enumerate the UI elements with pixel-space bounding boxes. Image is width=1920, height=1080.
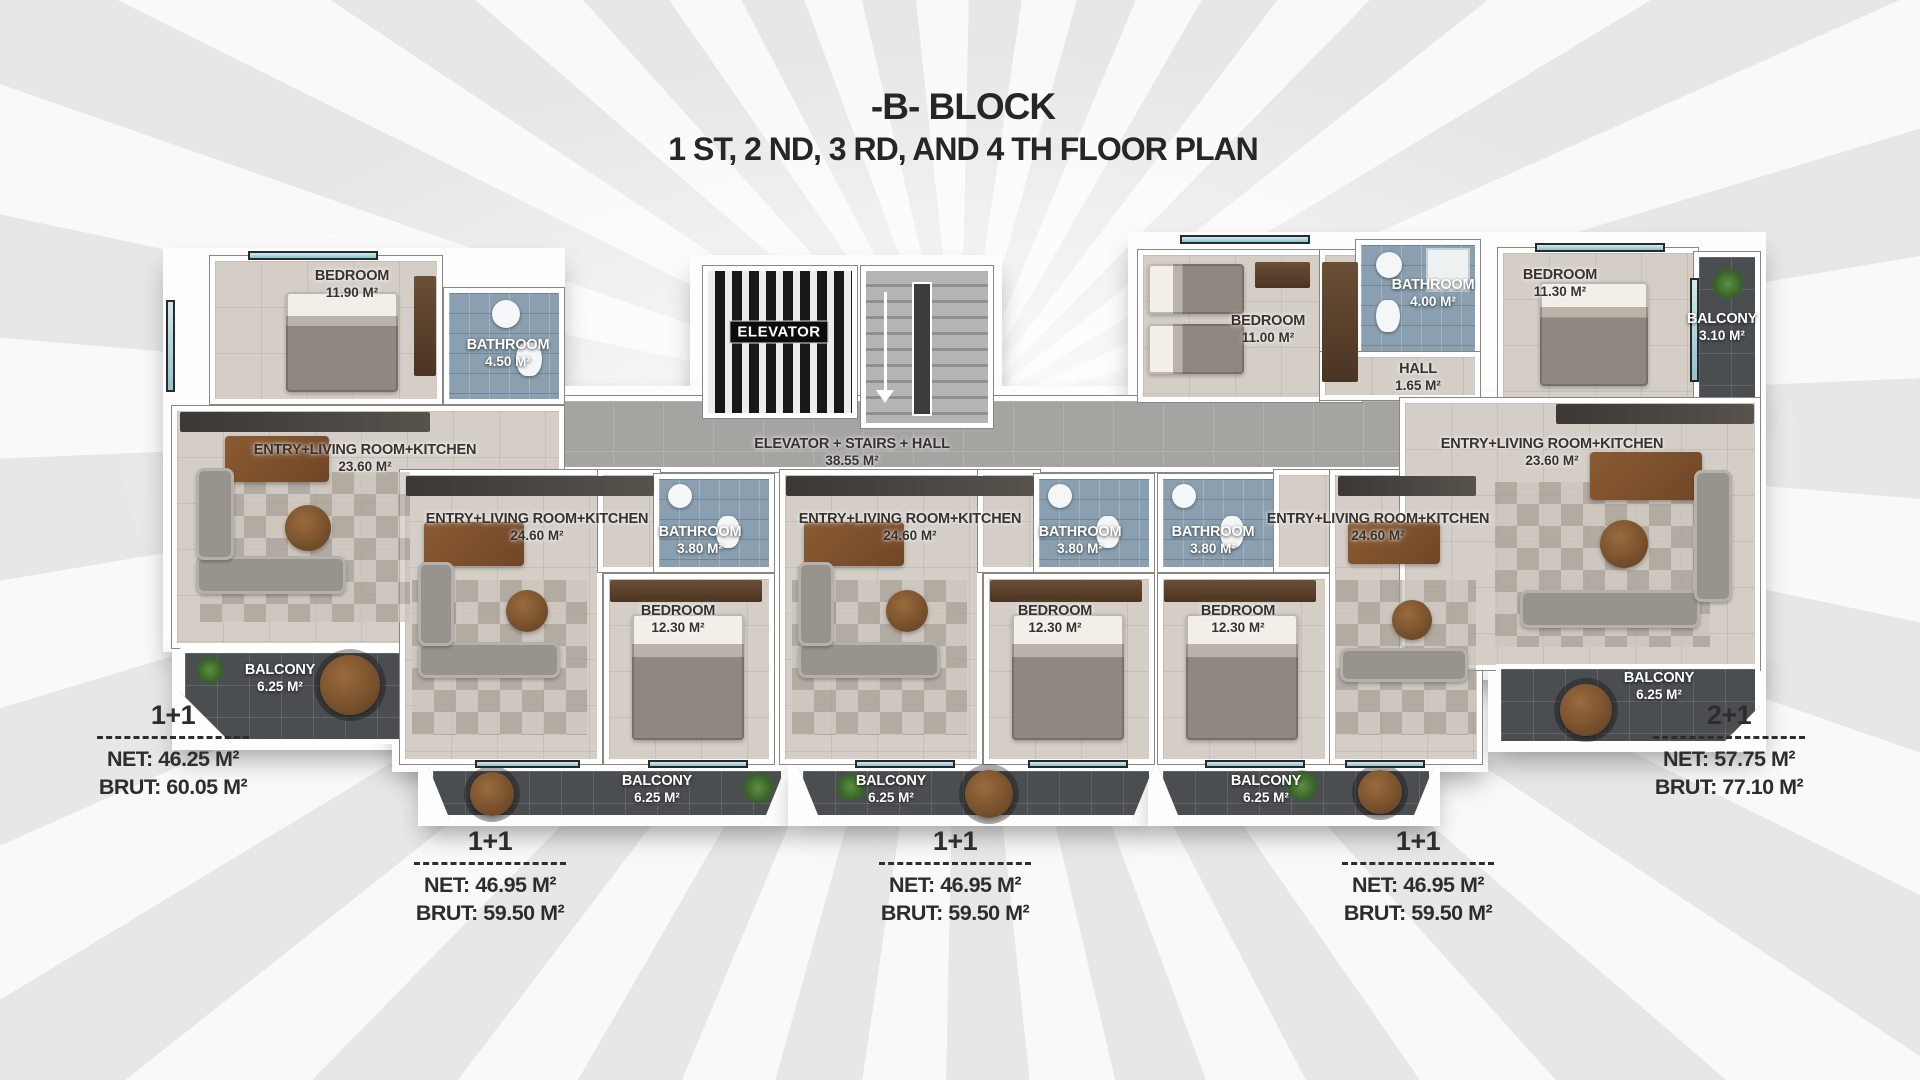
balcony-table-graphic [1358,770,1402,814]
room-area: 11.30 M² [1523,284,1597,299]
room-name: BATHROOM [659,524,742,541]
window-graphic [648,760,748,768]
room-label-right-bedroom1: BEDROOM 11.00 M² [1231,313,1305,345]
room-label-unit-b-balcony: BALCONY 6.25 M² [856,773,926,805]
room-area: 38.55 M² [754,453,950,468]
coffee-table-graphic [886,590,928,632]
brut-area: BRUT: 60.05 M² [73,774,273,802]
coffee-table-graphic [1600,520,1648,568]
sofa-graphic [1520,590,1700,628]
coffee-table-graphic [285,505,331,551]
unit-summary-left: 1+1 NET: 46.25 M² BRUT: 60.05 M² [73,700,273,802]
kitchen-counter-graphic [406,476,654,496]
room-area: 24.60 M² [1267,528,1489,543]
balcony-table-graphic [1560,684,1612,736]
room-area: 23.60 M² [1441,453,1663,468]
room-name: BALCONY [1687,311,1757,328]
window-graphic [166,300,175,392]
unit-type: 1+1 [73,700,273,731]
unit-summary-c: 1+1 NET: 46.95 M² BRUT: 59.50 M² [1318,826,1518,928]
bed-graphic [286,292,398,392]
room-area: 12.30 M² [1201,620,1275,635]
window-graphic [1535,243,1665,252]
plant-graphic [742,772,774,804]
room-name: BATHROOM [467,337,550,354]
plant-graphic [196,656,224,684]
sink-graphic [1048,484,1072,508]
room-area: 6.25 M² [245,679,315,694]
room-name: BEDROOM [1018,603,1092,620]
room-area: 4.50 M² [467,354,550,369]
room-name: BALCONY [622,773,692,790]
kitchen-counter-graphic [1338,476,1476,496]
balcony-table-graphic [965,770,1013,818]
plan-title: -B- BLOCK 1 ST, 2 ND, 3 RD, AND 4 TH FLO… [463,86,1463,168]
dashed-divider [879,862,1031,865]
room-area: 23.60 M² [254,459,476,474]
desk-graphic [1255,262,1310,288]
room-label-left-bedroom: BEDROOM 11.90 M² [315,268,389,300]
balcony-table-graphic [320,655,380,715]
room-label-unit-c-bathroom: BATHROOM 3.80 M² [1172,524,1255,556]
balcony-table-graphic [470,772,514,816]
sofa-graphic [1694,470,1732,602]
wardrobe-graphic [1322,262,1358,382]
unit-summary-right: 2+1 NET: 57.75 M² BRUT: 77.10 M² [1629,700,1829,802]
brut-area: BRUT: 59.50 M² [855,900,1055,928]
dashed-divider [1653,736,1805,739]
room-area: 4.00 M² [1392,294,1475,309]
dashed-divider [414,862,566,865]
wardrobe-graphic [610,580,762,602]
room-name: BALCONY [856,773,926,790]
brut-area: BRUT: 77.10 M² [1629,774,1829,802]
sofa-graphic [798,562,834,646]
net-area: NET: 46.95 M² [855,872,1055,900]
room-label-left-balcony: BALCONY 6.25 M² [245,662,315,694]
window-graphic [248,251,378,260]
sofa-graphic [418,642,560,678]
room-area: 6.25 M² [1231,790,1301,805]
single-bed-graphic [1148,324,1244,374]
net-area: NET: 46.95 M² [390,872,590,900]
room-name: BATHROOM [1039,524,1122,541]
sofa-graphic [196,468,234,560]
sink-graphic [1172,484,1196,508]
unit-type: 1+1 [390,826,590,857]
sink-graphic [1376,252,1402,278]
room-name: ENTRY+LIVING ROOM+KITCHEN [426,511,648,528]
room-label-unit-c-bedroom: BEDROOM 12.30 M² [1201,603,1275,635]
room-label-right-living: ENTRY+LIVING ROOM+KITCHEN 23.60 M² [1441,436,1663,468]
room-name: BALCONY [1231,773,1301,790]
room-name: BEDROOM [1523,267,1597,284]
dashed-divider [97,736,249,739]
room-area: 3.10 M² [1687,328,1757,343]
wardrobe-graphic [1164,580,1316,602]
brut-area: BRUT: 59.50 M² [1318,900,1518,928]
room-name: ELEVATOR + STAIRS + HALL [754,436,950,453]
unit-type: 1+1 [855,826,1055,857]
sink-graphic [492,300,520,328]
single-bed-graphic [1148,264,1244,314]
room-area: 11.00 M² [1231,330,1305,345]
room-label-unit-b-bedroom: BEDROOM 12.30 M² [1018,603,1092,635]
net-area: NET: 57.75 M² [1629,746,1829,774]
room-area: 3.80 M² [1172,541,1255,556]
kitchen-counter-graphic [1556,404,1754,424]
room-label-unit-a-balcony: BALCONY 6.25 M² [622,773,692,805]
sofa-graphic [196,556,346,594]
room-area: 6.25 M² [856,790,926,805]
window-graphic [855,760,955,768]
room-label-right-balcony: BALCONY 6.25 M² [1624,670,1694,702]
room-area: 6.25 M² [622,790,692,805]
sofa-graphic [418,562,454,646]
room-area: 24.60 M² [799,528,1021,543]
room-label-unit-b-living: ENTRY+LIVING ROOM+KITCHEN 24.60 M² [799,511,1021,543]
room-label-left-bathroom: BATHROOM 4.50 M² [467,337,550,369]
room-label-core-hall: ELEVATOR + STAIRS + HALL 38.55 M² [754,436,950,468]
block-title: -B- BLOCK [463,86,1463,128]
sink-graphic [668,484,692,508]
sofa-graphic [798,642,940,678]
room-name: BALCONY [1624,670,1694,687]
net-area: NET: 46.95 M² [1318,872,1518,900]
unit-type: 1+1 [1318,826,1518,857]
wardrobe-graphic [990,580,1142,602]
room-name: BEDROOM [641,603,715,620]
room-label-unit-a-bedroom: BEDROOM 12.30 M² [641,603,715,635]
window-graphic [1345,760,1425,768]
room-name: ENTRY+LIVING ROOM+KITCHEN [1267,511,1489,528]
unit-summary-b: 1+1 NET: 46.95 M² BRUT: 59.50 M² [855,826,1055,928]
window-graphic [1180,235,1310,244]
room-name: ENTRY+LIVING ROOM+KITCHEN [799,511,1021,528]
stairs-arrow-line [884,292,887,392]
window-graphic [475,760,580,768]
net-area: NET: 46.25 M² [73,746,273,774]
room-label-unit-a-bathroom: BATHROOM 3.80 M² [659,524,742,556]
dashed-divider [1342,862,1494,865]
room-label-unit-a-living: ENTRY+LIVING ROOM+KITCHEN 24.60 M² [426,511,648,543]
unit-summary-a: 1+1 NET: 46.95 M² BRUT: 59.50 M² [390,826,590,928]
room-label-right-bedroom2: BEDROOM 11.30 M² [1523,267,1597,299]
room-area: 24.60 M² [426,528,648,543]
room-area: 3.80 M² [659,541,742,556]
stair-rail [912,282,932,416]
window-graphic [1028,760,1128,768]
unit-type: 2+1 [1629,700,1829,731]
floors-title: 1 ST, 2 ND, 3 RD, AND 4 TH FLOOR PLAN [463,131,1463,168]
room-area: 3.80 M² [1039,541,1122,556]
room-label-unit-b-bathroom: BATHROOM 3.80 M² [1039,524,1122,556]
kitchen-counter-graphic [786,476,1034,496]
plant-graphic [1712,268,1744,300]
room-area: 1.65 M² [1395,378,1441,393]
brut-area: BRUT: 59.50 M² [390,900,590,928]
kitchen-counter-graphic [180,412,430,432]
elevator-label: ELEVATOR [729,321,828,344]
floor-plan-poster: -B- BLOCK 1 ST, 2 ND, 3 RD, AND 4 TH FLO… [0,0,1920,1080]
wardrobe-graphic [414,276,436,376]
window-graphic [1205,760,1305,768]
sofa-graphic [1340,648,1468,682]
room-name: HALL [1395,361,1441,378]
room-label-right-small-balcony: BALCONY 3.10 M² [1687,311,1757,343]
room-name: BATHROOM [1392,277,1475,294]
room-name: BATHROOM [1172,524,1255,541]
room-name: BALCONY [245,662,315,679]
room-label-left-living: ENTRY+LIVING ROOM+KITCHEN 23.60 M² [254,442,476,474]
room-name: BEDROOM [315,268,389,285]
room-area: 12.30 M² [641,620,715,635]
room-name: BEDROOM [1201,603,1275,620]
room-name: ENTRY+LIVING ROOM+KITCHEN [1441,436,1663,453]
room-label-right-bathroom: BATHROOM 4.00 M² [1392,277,1475,309]
room-label-unit-c-living: ENTRY+LIVING ROOM+KITCHEN 24.60 M² [1267,511,1489,543]
coffee-table-graphic [506,590,548,632]
room-label-unit-c-balcony: BALCONY 6.25 M² [1231,773,1301,805]
room-area: 11.90 M² [315,285,389,300]
room-label-right-hall: HALL 1.65 M² [1395,361,1441,393]
coffee-table-graphic [1392,600,1432,640]
room-area: 12.30 M² [1018,620,1092,635]
room-name: BEDROOM [1231,313,1305,330]
room-name: ENTRY+LIVING ROOM+KITCHEN [254,442,476,459]
stairs-arrow-head [876,390,894,403]
